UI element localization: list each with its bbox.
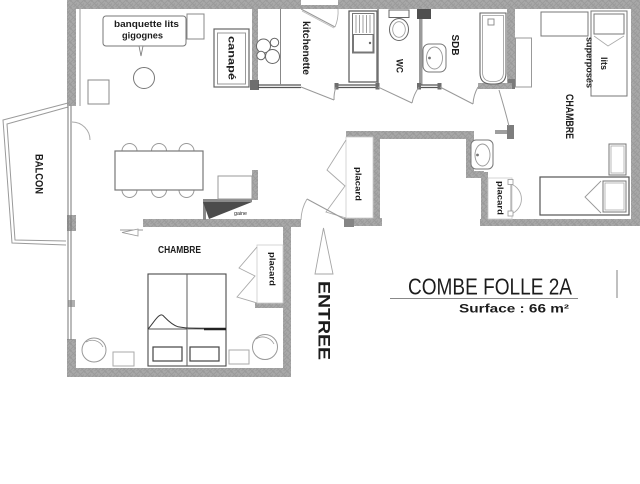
svg-text:gaine: gaine — [234, 211, 247, 217]
svg-text:kitchenette: kitchenette — [300, 21, 312, 75]
svg-text:Surface : 66 m²: Surface : 66 m² — [459, 304, 569, 316]
svg-text:BALCON: BALCON — [32, 154, 44, 194]
svg-text:banquette lits: banquette lits — [114, 19, 179, 30]
svg-text:CHAMBRE: CHAMBRE — [563, 94, 575, 139]
svg-text:superposés: superposés — [584, 37, 595, 88]
svg-text:ENTREE: ENTREE — [315, 281, 334, 360]
svg-text:SDB: SDB — [449, 35, 461, 56]
svg-text:CHAMBRE: CHAMBRE — [158, 245, 201, 256]
svg-text:canapé: canapé — [226, 36, 237, 81]
svg-text:gigognes: gigognes — [122, 31, 163, 42]
svg-text:lits: lits — [599, 57, 609, 70]
svg-text:WC: WC — [395, 59, 405, 73]
svg-text:placard: placard — [268, 252, 277, 286]
svg-text:placard: placard — [496, 181, 505, 215]
svg-text:COMBE FOLLE 2A: COMBE FOLLE 2A — [408, 274, 573, 300]
svg-text:placard: placard — [354, 167, 363, 201]
